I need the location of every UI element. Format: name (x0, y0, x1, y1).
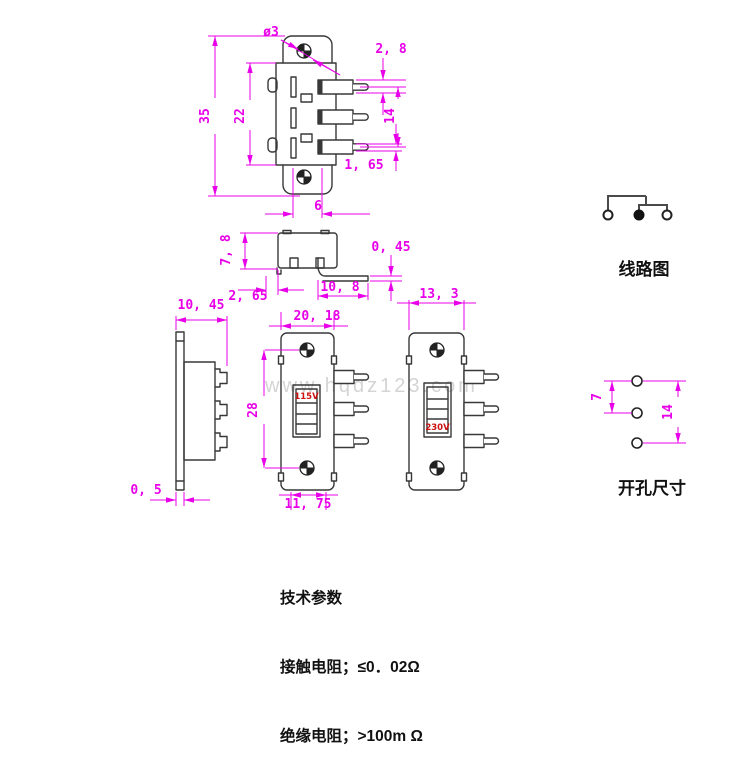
tech-params-title: 技术参数 (280, 587, 518, 610)
dim-hole-dia: ø3 (263, 25, 279, 40)
side-view (176, 332, 227, 490)
front-view-230-dimensions: 13, 3 (397, 287, 476, 330)
contact-common-icon (634, 210, 644, 220)
circuit-diagram-label: 线路图 (619, 259, 670, 279)
tech-param-line: 绝缘电阻；>100m Ω (280, 725, 518, 748)
dim-tab-width: 11, 75 (285, 497, 332, 512)
terminal-pin (464, 371, 499, 384)
terminal-pin (318, 110, 368, 124)
dim-flange-length: 10, 8 (320, 280, 359, 295)
screw-hole-icon (430, 461, 444, 475)
dim-cutout-pitch: 7 (590, 393, 605, 401)
dim-terminal-thickness: 2, 8 (375, 42, 406, 57)
terminal-edge (215, 433, 227, 451)
contact-open-icon (663, 211, 672, 220)
panel-cutout-label: 开孔尺寸 (618, 478, 686, 498)
dim-mid-height: 7, 8 (219, 234, 234, 265)
dim-plate-thickness: 0, 5 (130, 483, 161, 498)
tech-param-line: 接触电阻；≤0．02Ω (280, 656, 518, 679)
terminal-pin (334, 435, 369, 448)
dim-side-depth: 10, 45 (178, 298, 225, 313)
voltage-label-230: 230V (425, 423, 450, 433)
screw-hole-icon (297, 170, 311, 184)
screw-hole-icon (430, 343, 444, 357)
tech-params: 技术参数 接触电阻；≤0．02Ω 绝缘电阻；>100m Ω 耐电压； ≥1500… (280, 541, 518, 766)
front-view-230: 230V (407, 333, 499, 490)
contact-open-icon (604, 211, 613, 220)
cutout-hole-icon (632, 376, 642, 386)
panel-cutout: 14 7 开孔尺寸 (590, 376, 686, 498)
dim-hole-span: 28 (246, 402, 261, 418)
cutout-hole-icon (632, 408, 642, 418)
cutout-hole-icon (632, 438, 642, 448)
circuit-diagram: 线路图 (604, 196, 672, 279)
end-view (277, 231, 368, 282)
terminal-pin (464, 435, 499, 448)
terminal-edge (215, 401, 227, 419)
dim-back-width: 13, 3 (419, 287, 458, 302)
terminal-pin (464, 403, 499, 416)
dim-foot-offset: 2, 65 (228, 289, 267, 304)
drawing-canvas: www.hqdz123.com 35 22 ø3 2, 8 (0, 0, 751, 766)
dim-pin-thickness: 1, 65 (344, 158, 383, 173)
terminal-edge (215, 369, 227, 387)
dim-cutout-span: 14 (661, 404, 676, 420)
dim-flange-thickness: 0, 45 (371, 240, 410, 255)
dim-body-height: 22 (233, 108, 248, 124)
screw-hole-icon (300, 461, 314, 475)
side-view-dimensions: 10, 45 0, 5 (130, 298, 227, 506)
screw-hole-icon (300, 343, 314, 357)
terminal-pin (334, 403, 369, 416)
dim-total-height: 35 (198, 108, 213, 124)
dim-front-width: 20, 18 (294, 309, 341, 324)
front-view-115: 115V (279, 333, 369, 490)
dim-terminal-span: 14 (383, 108, 398, 124)
voltage-label-115: 115V (294, 392, 319, 402)
dim-offset: 6 (314, 199, 322, 214)
